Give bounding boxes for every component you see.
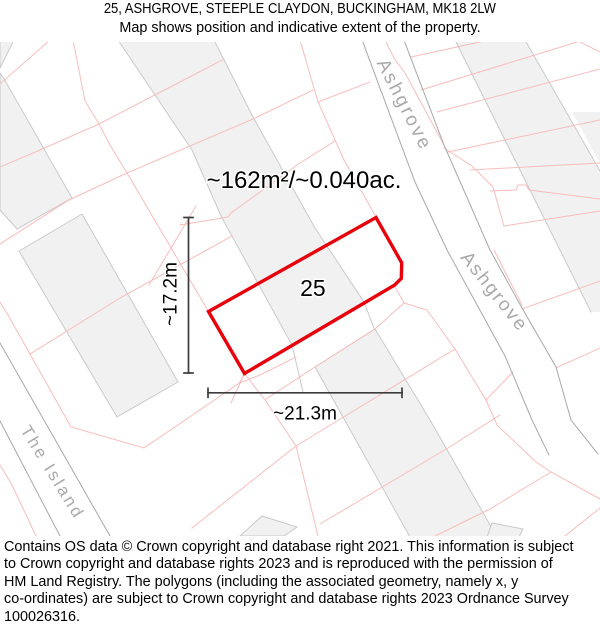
svg-text:Ashgrove: Ashgrove [372, 56, 436, 155]
svg-text:~21.3m: ~21.3m [273, 404, 337, 425]
svg-text:~17.2m: ~17.2m [161, 262, 182, 326]
svg-text:~162m²/~0.040ac.: ~162m²/~0.040ac. [207, 167, 402, 194]
svg-text:Ashgrove: Ashgrove [456, 248, 532, 336]
svg-text:25: 25 [300, 275, 326, 301]
